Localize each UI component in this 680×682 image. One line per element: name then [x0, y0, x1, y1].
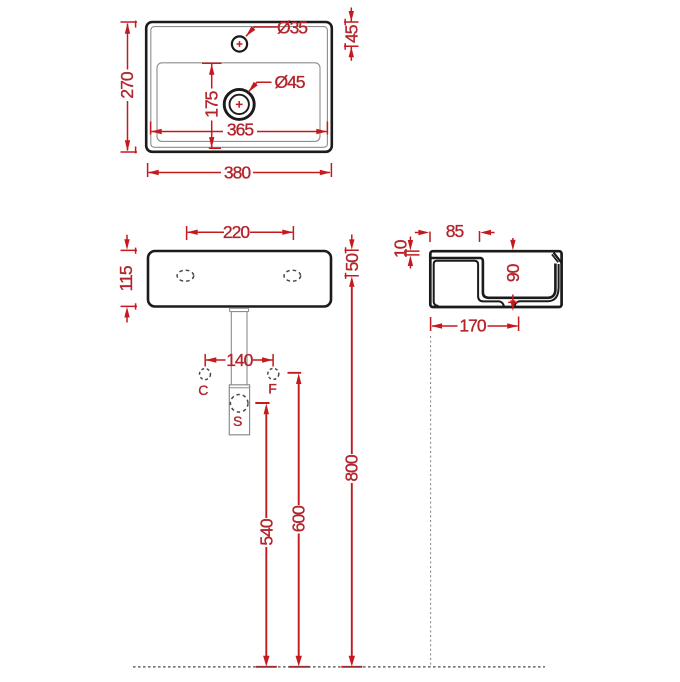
svg-text:220: 220	[223, 222, 250, 242]
svg-text:140: 140	[226, 350, 253, 370]
svg-text:Ø45: Ø45	[274, 72, 304, 92]
svg-text:380: 380	[224, 162, 251, 182]
svg-text:F: F	[268, 381, 277, 397]
svg-text:90: 90	[503, 263, 523, 282]
svg-text:115: 115	[116, 266, 136, 291]
svg-text:800: 800	[342, 454, 362, 481]
svg-text:50: 50	[342, 253, 362, 272]
svg-text:85: 85	[446, 221, 464, 241]
svg-text:10: 10	[390, 239, 410, 258]
svg-text:540: 540	[256, 518, 276, 545]
svg-text:45: 45	[341, 25, 361, 43]
svg-text:170: 170	[459, 316, 486, 336]
svg-text:270: 270	[117, 71, 137, 98]
svg-text:600: 600	[289, 505, 309, 532]
svg-text:C: C	[198, 382, 208, 398]
svg-text:S: S	[233, 413, 242, 429]
svg-text:Ø35: Ø35	[277, 18, 307, 38]
svg-text:365: 365	[227, 119, 253, 139]
svg-text:175: 175	[202, 91, 222, 117]
